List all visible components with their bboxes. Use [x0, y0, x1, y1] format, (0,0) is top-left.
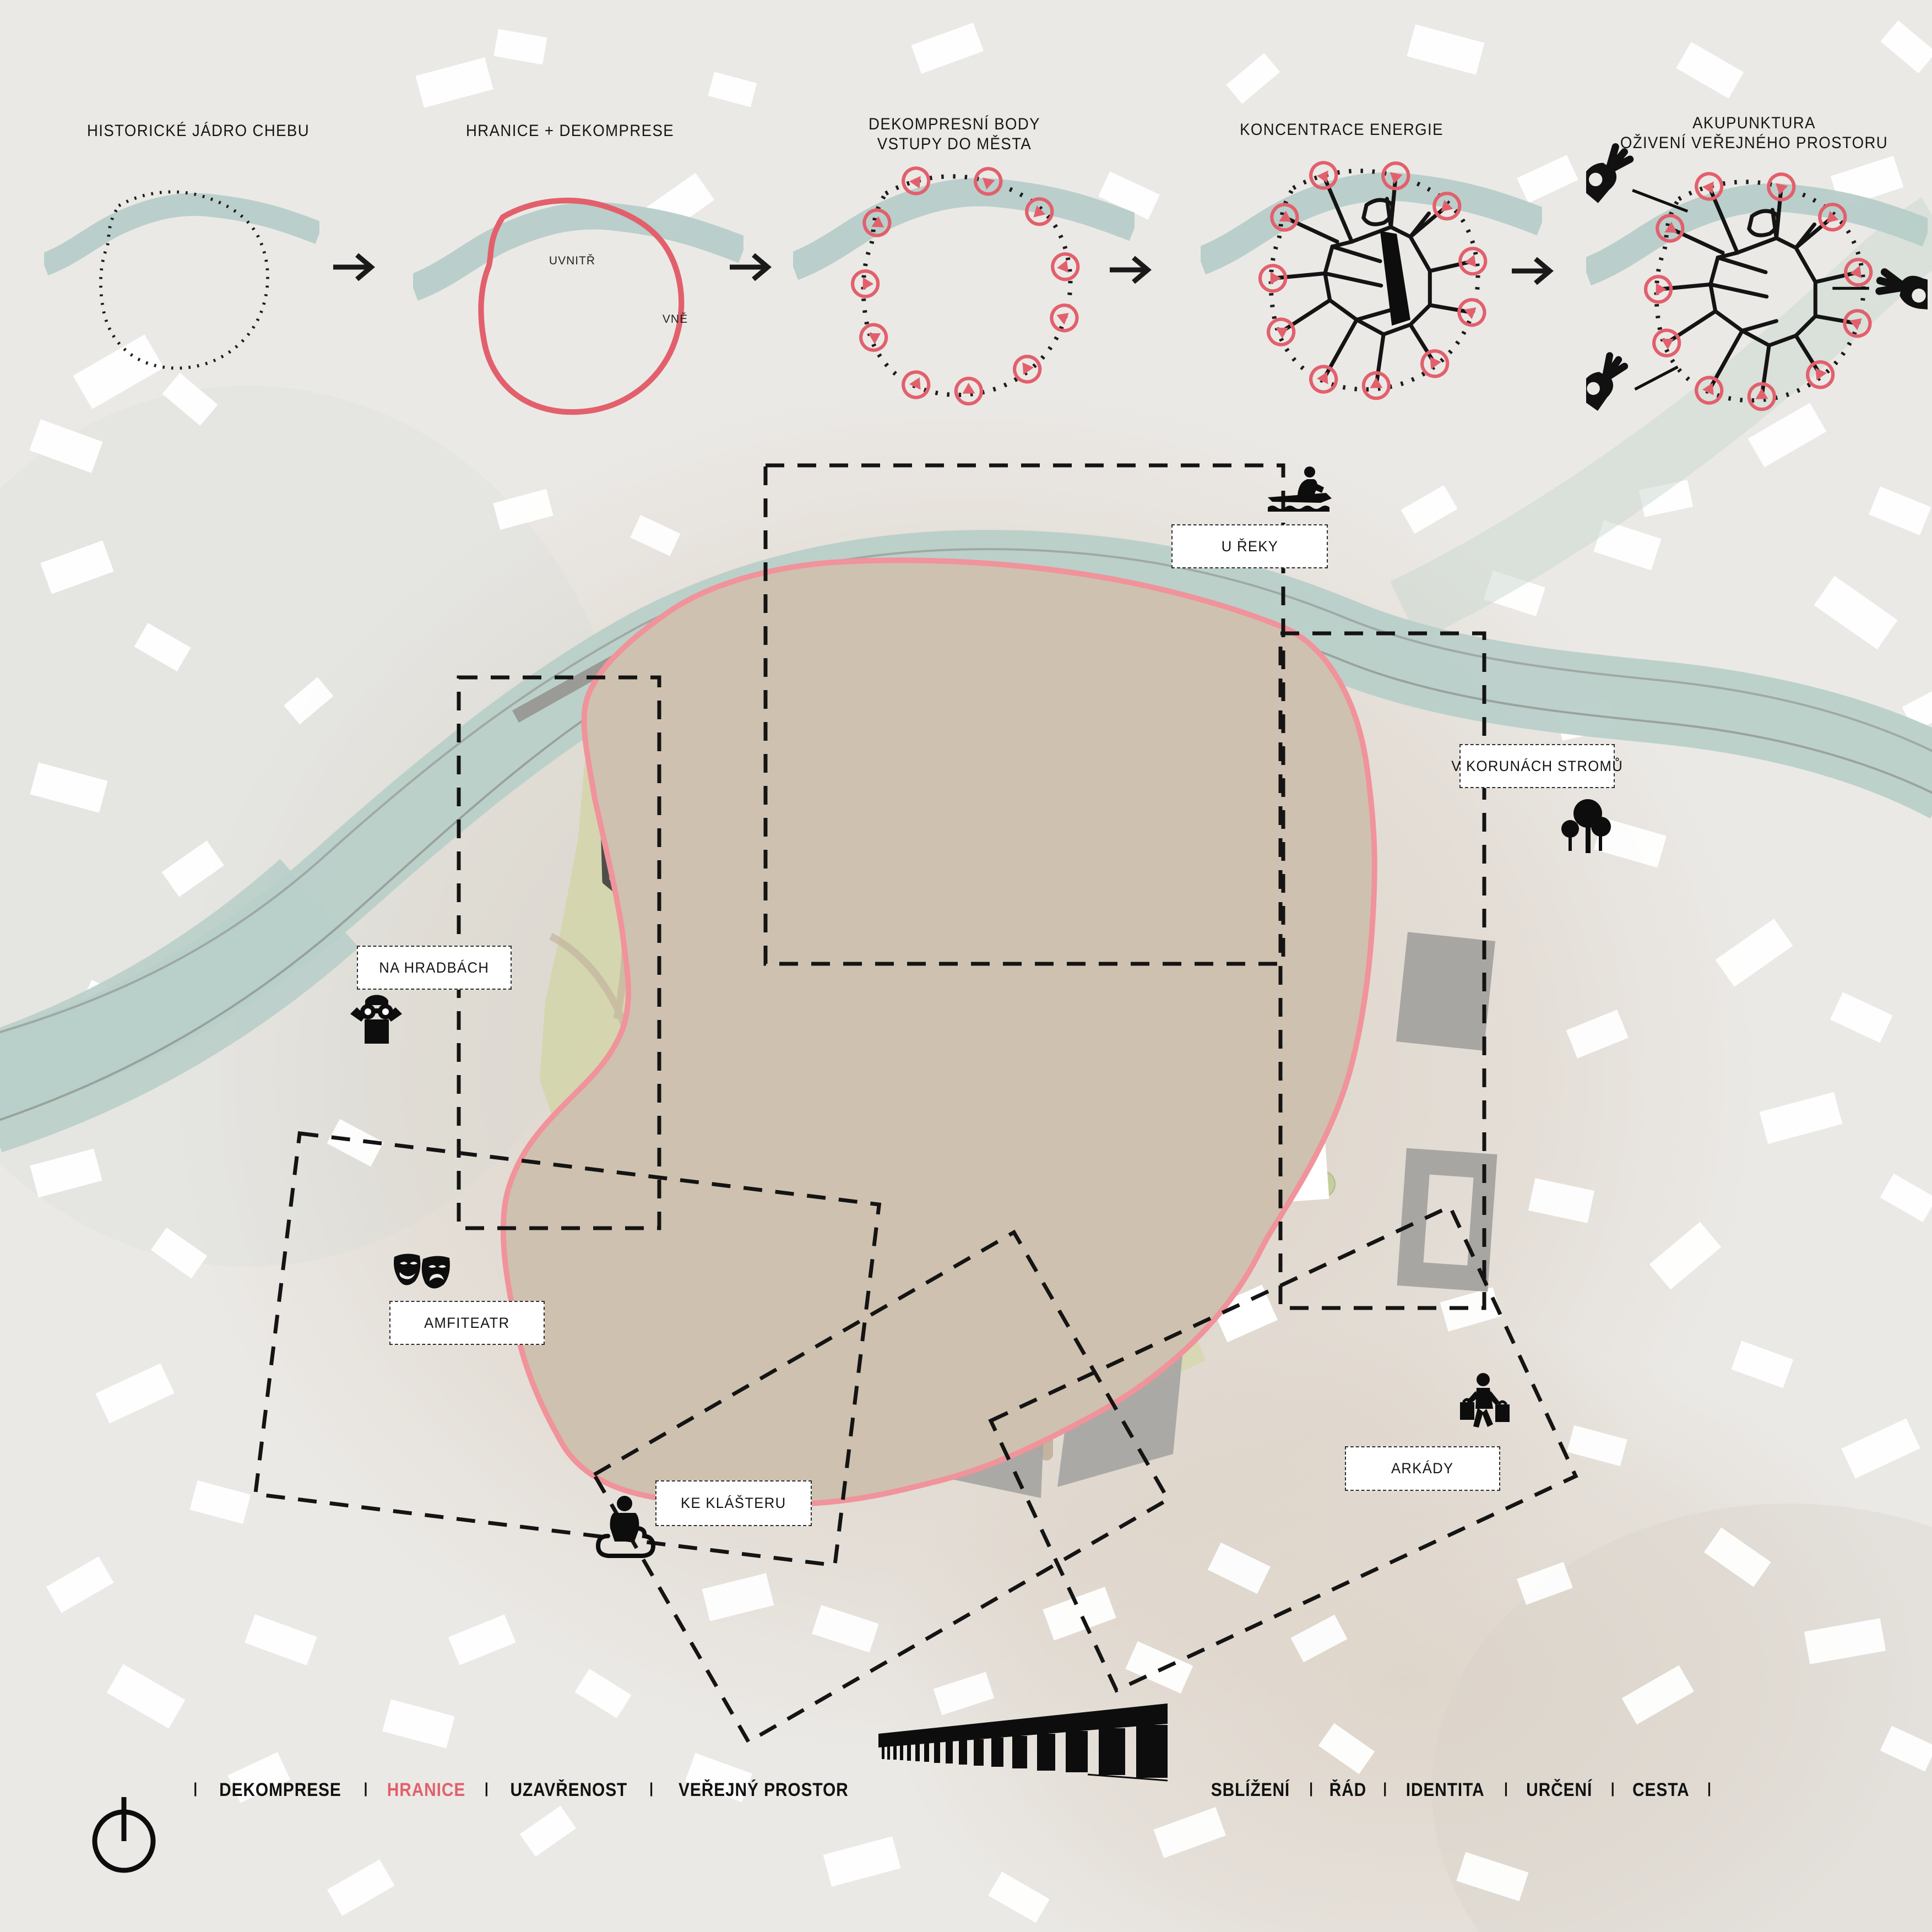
arrow-icon	[1509, 254, 1564, 287]
zone-label-arkady: ARKÁDY	[1345, 1446, 1500, 1491]
tag-sblizeni: SBLÍŽENÍ	[1211, 1779, 1290, 1801]
tag-identita: IDENTITA	[1406, 1779, 1485, 1801]
binoculars-icon	[346, 993, 406, 1045]
step3-title: DEKOMPRESNÍ BODYVSTUPY DO MĚSTA	[869, 115, 1040, 154]
arrow-icon	[1107, 253, 1162, 286]
step4-title: KONCENTRACE ENERGIE	[1240, 120, 1443, 140]
tag-hranice-active: HRANICE	[387, 1779, 465, 1801]
zone-label-na-hradbach: NA HRADBÁCH	[357, 946, 512, 990]
step1-diagram	[44, 107, 319, 383]
tag-uzavrenost: UZAVŘENOST	[511, 1779, 628, 1801]
inside-label: UVNITŘ	[549, 254, 595, 268]
arrow-icon	[330, 251, 386, 284]
arcade-illustration	[878, 1699, 1168, 1784]
rowing-icon	[1267, 465, 1333, 518]
tag-cesta: CESTA	[1632, 1779, 1690, 1801]
poster-root: HISTORICKÉ JÁDRO CHEBU HRANICE + DEKOMPR…	[0, 0, 1932, 1932]
tag-urceni: URČENÍ	[1526, 1779, 1592, 1801]
step5-title: AKUPUNKTURAOŽIVENÍ VEŘEJNÉHO PROSTORU	[1620, 113, 1888, 153]
footer-tags-right: SBLÍŽENÍ I ŘÁD I IDENTITA I URČENÍ I CES…	[1206, 1778, 1725, 1802]
footer-tags-left: I DEKOMPRESE I HRANICE I UZAVŘENOST I VE…	[180, 1778, 860, 1802]
zone-label-ke-klasteru: KE KLÁŠTERU	[655, 1480, 812, 1526]
step2-title: HRANICE + DEKOMPRESE	[466, 121, 674, 141]
outside-label: VNĚ	[663, 313, 688, 326]
trees-icon	[1557, 796, 1613, 856]
shopping-icon	[1451, 1372, 1512, 1439]
arrow-icon	[727, 251, 782, 284]
zone-label-u-reky: U ŘEKY	[1171, 524, 1328, 568]
tag-dekomprese: DEKOMPRESE	[220, 1779, 342, 1801]
tag-rad: ŘÁD	[1329, 1779, 1366, 1801]
zone-label-amfiteatr: AMFITEATR	[389, 1301, 545, 1345]
cloud-person-icon	[595, 1495, 656, 1568]
theater-masks-icon	[391, 1249, 464, 1296]
tag-verejny-prostor: VEŘEJNÝ PROSTOR	[679, 1779, 849, 1801]
ok-hand-icon	[1586, 138, 1928, 411]
power-logo-icon	[88, 1793, 160, 1875]
step1-title: HISTORICKÉ JÁDRO CHEBU	[87, 121, 310, 141]
zone-label-v-korunach: V KORUNÁCH STROMŮ	[1459, 744, 1615, 788]
step4-diagram	[1201, 66, 1542, 408]
